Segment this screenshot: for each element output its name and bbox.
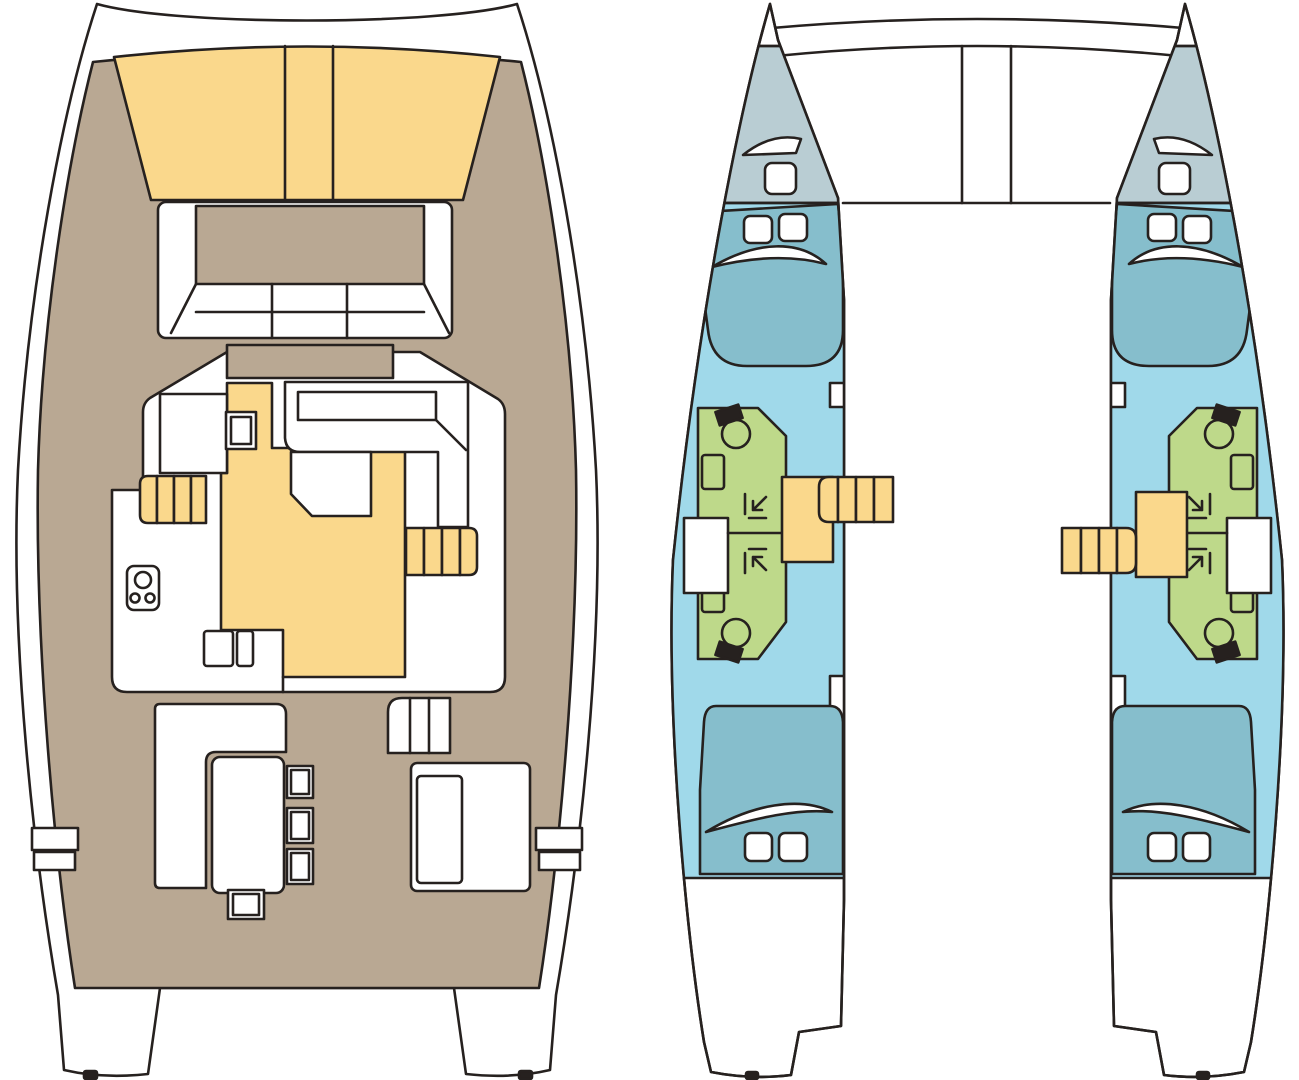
boarding-step [34,852,75,870]
crossbeam-arc [776,46,1179,56]
stairs-port-hull [140,476,206,523]
mast-beam [962,46,1011,203]
hull-plan-boat [650,4,1299,1079]
drawing-root [16,4,1299,1079]
rudder-mark [519,1071,532,1079]
boarding-step [536,828,582,850]
saloon-table [291,452,371,516]
boarding-step [539,852,580,870]
boarding-step [32,828,78,850]
coachroof-front [227,345,393,378]
catamaran-layout-canvas [0,0,1299,1080]
helm-steps [388,698,450,753]
rudder-mark [746,1072,758,1079]
cockpit-table [212,757,284,893]
galley-unit [204,631,233,666]
stairs-starboard-hull [406,528,477,575]
galley-unit [237,631,253,666]
rudder-mark [84,1071,97,1079]
deck-plan-boat [16,4,597,1079]
rudder-mark [1197,1072,1209,1079]
layout-drawing [0,0,1299,1080]
bow-sunpad [114,47,500,201]
crossbeam-arc [772,19,1183,28]
galley-counter [160,394,227,473]
cockpit-bench [411,763,530,891]
foredeck-lounge-floor [196,206,424,284]
